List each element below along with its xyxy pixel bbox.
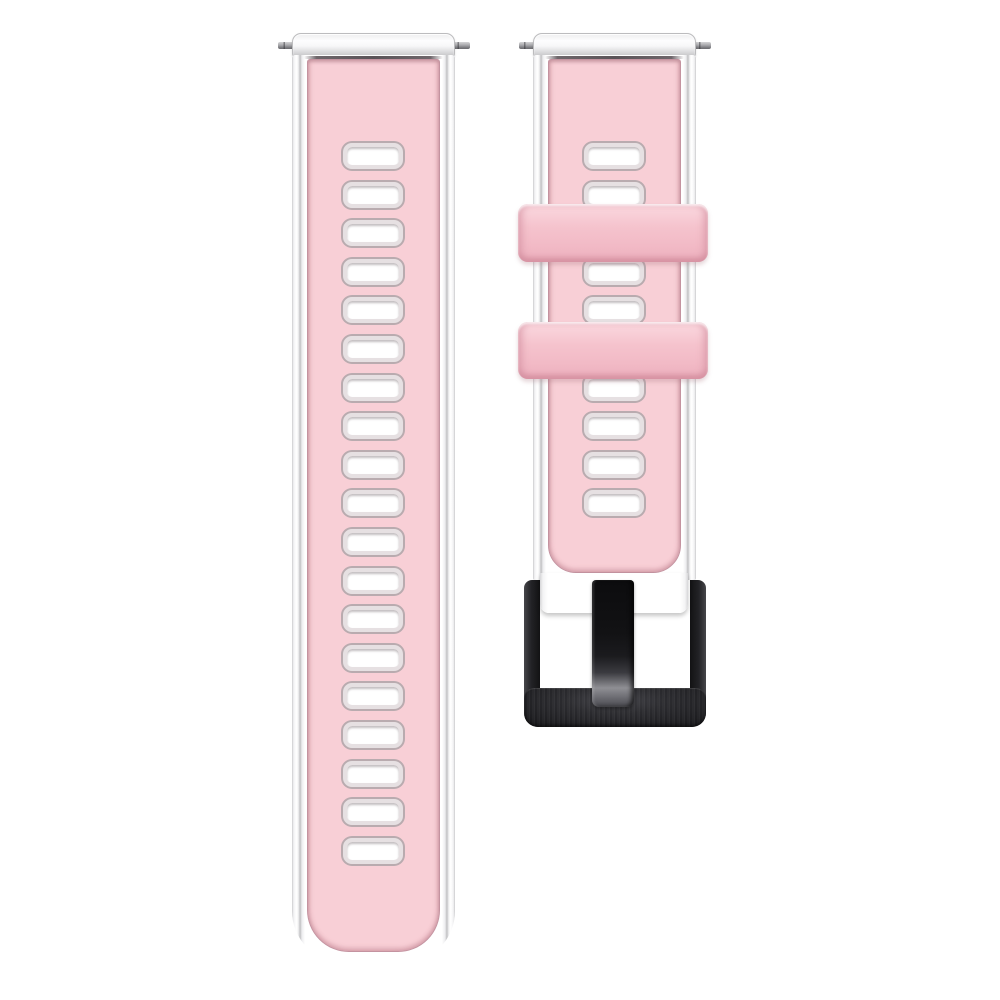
strap-hole [343, 568, 403, 594]
strap-hole [343, 182, 403, 208]
strap-hole [343, 761, 403, 787]
strap-hole [584, 413, 644, 439]
strap-hole [343, 529, 403, 555]
keeper-loop [518, 204, 708, 262]
strap-hole [584, 297, 644, 323]
product-photo [0, 0, 1000, 1000]
strap-hole [343, 722, 403, 748]
lug-end-cap [533, 33, 696, 57]
strap-hole [584, 259, 644, 285]
buckle-tongue [592, 580, 634, 707]
strap-hole [343, 683, 403, 709]
strap-hole [584, 490, 644, 516]
keeper-loop [518, 322, 708, 379]
strap-hole [343, 143, 403, 169]
strap-hole [343, 799, 403, 825]
cap-seam [304, 56, 443, 59]
strap-hole [584, 143, 644, 169]
spring-bar-pin [694, 42, 711, 49]
strap-hole [343, 220, 403, 246]
cap-seam [545, 56, 684, 59]
strap-hole [343, 645, 403, 671]
strap-hole [343, 375, 403, 401]
strap-hole [584, 452, 644, 478]
strap-hole [343, 336, 403, 362]
strap-hole [343, 838, 403, 864]
strap-hole [343, 413, 403, 439]
strap-hole [343, 297, 403, 323]
strap-hole [343, 490, 403, 516]
strap-hole [343, 452, 403, 478]
strap-hole [343, 606, 403, 632]
strap-hole [343, 259, 403, 285]
lug-end-cap [292, 33, 455, 57]
